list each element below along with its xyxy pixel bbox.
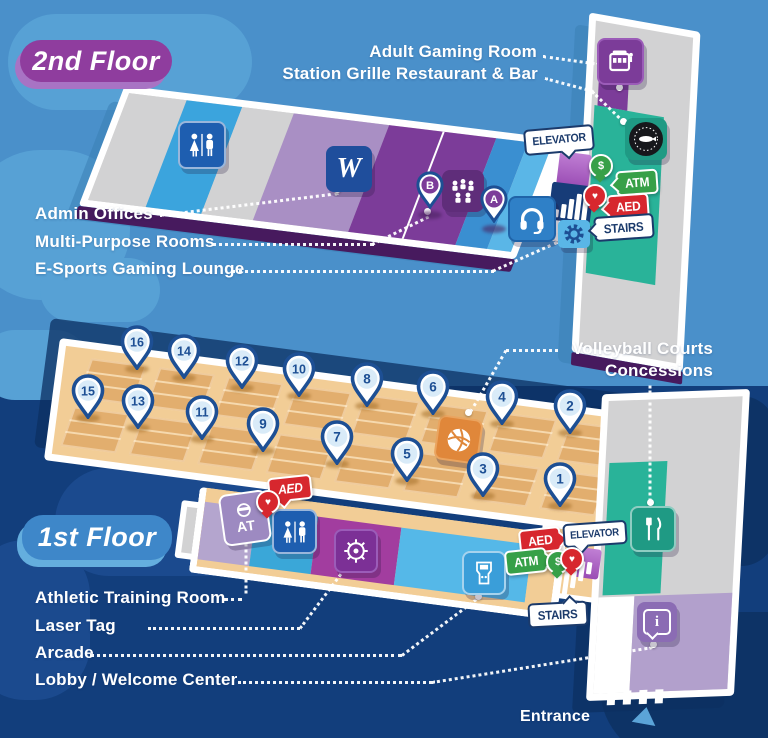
leader-dot	[465, 409, 472, 416]
leader	[224, 598, 242, 601]
aed-pin-icon-courts: ♥	[256, 490, 280, 514]
callout-multi-purpose-rooms: Multi-Purpose Rooms	[35, 232, 214, 252]
svg-text:5: 5	[403, 446, 411, 461]
svg-text:11: 11	[195, 405, 208, 419]
svg-text:10: 10	[292, 362, 306, 376]
entrance-comb	[607, 689, 664, 705]
room-pin-B: B	[415, 170, 445, 214]
elevator-sign-1f: ELEVATOR	[562, 520, 628, 548]
svg-text:6: 6	[429, 379, 437, 394]
leader-dot	[647, 499, 654, 506]
entrance-label: Entrance	[520, 708, 590, 726]
svg-text:4: 4	[498, 389, 506, 404]
leader-dot	[616, 84, 623, 91]
callout-laser-tag: Laser Tag	[35, 616, 116, 636]
court-pin-12: 12	[224, 343, 260, 394]
restaurant-logo	[629, 122, 663, 156]
admin-logo-badge: W	[326, 146, 372, 192]
stairs-sign-1f: STAIRS	[527, 600, 588, 628]
arcade-icon	[462, 551, 506, 595]
leader	[649, 386, 652, 502]
court-pin-10: 10	[281, 351, 317, 402]
callout-arcade: Arcade	[35, 643, 94, 663]
court-pin-3: 3	[465, 451, 501, 502]
leader	[148, 627, 300, 630]
callout-esports-gaming-lounge: E-Sports Gaming Lounge	[35, 259, 244, 279]
court-pin-13: 13	[120, 383, 156, 434]
court-pin-5: 5	[389, 436, 425, 487]
info-icon: i	[637, 602, 677, 642]
svg-text:16: 16	[130, 335, 144, 349]
atm-sign-2f: ATM	[615, 169, 659, 197]
facility-map: W $ ♥ ATM AED STAIRS ELEVATOR 2nd Floor …	[0, 0, 768, 738]
restaurant-logo-tile	[625, 118, 667, 160]
laser-tag-icon	[334, 529, 378, 573]
leader	[238, 681, 432, 684]
court-pin-15: 15	[70, 373, 106, 424]
leader	[90, 654, 402, 657]
court-pin-2: 2	[552, 388, 588, 439]
floor1-badge: 1st Floor	[22, 515, 172, 560]
svg-text:1: 1	[556, 471, 564, 486]
headset-icon	[508, 196, 556, 242]
court-pin-9: 9	[245, 406, 281, 457]
callout-admin-offices: Admin Offices	[35, 204, 153, 224]
atm-sign-1f: ATM	[504, 547, 548, 576]
callout-athletic-training-room: Athletic Training Room	[35, 588, 225, 608]
svg-text:2: 2	[566, 398, 574, 413]
court-pin-1: 1	[542, 461, 578, 512]
callout-station-grille: Station Grille Restaurant & Bar	[282, 64, 538, 84]
court-pin-11: 11	[184, 394, 220, 445]
aed-pin-icon-2f: ♥	[583, 184, 607, 208]
callout-lobby-welcome-center: Lobby / Welcome Center	[35, 670, 237, 690]
svg-text:8: 8	[363, 371, 371, 386]
court-pin-14: 14	[166, 333, 202, 384]
svg-text:14: 14	[177, 344, 191, 358]
concessions-icon	[630, 506, 676, 552]
leader	[212, 243, 374, 246]
callout-volleyball-courts: Volleyball Courts	[572, 339, 713, 359]
svg-text:12: 12	[235, 354, 249, 368]
heart-icon: ♥	[592, 191, 598, 202]
atm-pin-icon-2f: $	[589, 154, 613, 178]
leader	[506, 349, 558, 352]
admin-monogram: W	[337, 153, 362, 185]
aed-pin-icon-1f: ♥	[560, 547, 584, 571]
gear-icon	[558, 220, 590, 248]
room-lobby-path	[593, 596, 634, 693]
info-glyph-box: i	[643, 609, 671, 635]
svg-text:3: 3	[479, 461, 487, 476]
at-label: AT	[236, 517, 257, 535]
leader	[245, 544, 248, 594]
svg-text:B: B	[426, 180, 434, 192]
svg-text:13: 13	[131, 394, 145, 408]
svg-text:9: 9	[259, 416, 267, 431]
svg-text:7: 7	[333, 429, 341, 444]
room-pin-A: A	[479, 184, 509, 228]
callout-adult-gaming-room: Adult Gaming Room	[369, 42, 537, 62]
meeting-room-icon	[442, 170, 484, 212]
court-pin-6: 6	[415, 369, 451, 420]
restroom-icon-1f	[272, 509, 317, 554]
svg-text:15: 15	[81, 384, 95, 398]
svg-text:A: A	[490, 194, 498, 206]
court-pin-8: 8	[349, 361, 385, 412]
court-pin-16: 16	[119, 324, 155, 375]
callout-concessions: Concessions	[605, 361, 713, 381]
dollar-glyph: $	[598, 160, 604, 172]
leader	[232, 270, 494, 273]
court-pin-7: 7	[319, 419, 355, 470]
restroom-icon-2f	[178, 121, 226, 169]
floor2-badge: 2nd Floor	[20, 40, 172, 82]
leader-dot	[650, 641, 657, 648]
stairs-sign-2f: STAIRS	[593, 213, 655, 242]
slot-machine-icon	[597, 38, 644, 85]
court-pin-4: 4	[484, 379, 520, 430]
